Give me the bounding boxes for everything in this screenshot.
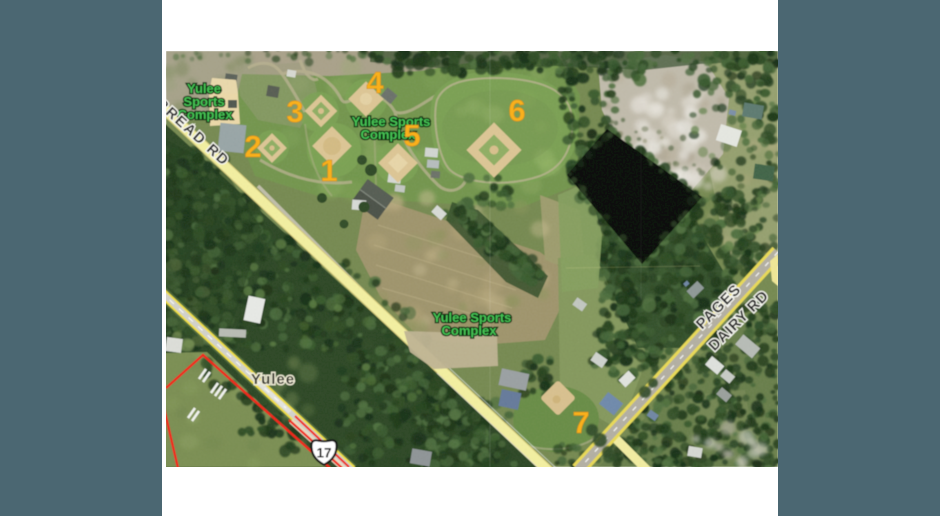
svg-text:4: 4 (366, 65, 384, 100)
svg-text:3: 3 (286, 94, 303, 129)
svg-text:Yulee: Yulee (251, 371, 295, 388)
svg-text:1: 1 (320, 153, 337, 188)
svg-text:Complex: Complex (442, 323, 498, 338)
svg-text:2: 2 (244, 129, 261, 164)
svg-text:6: 6 (508, 93, 525, 128)
svg-text:5: 5 (403, 118, 420, 153)
svg-text:7: 7 (572, 405, 589, 440)
svg-text:17: 17 (316, 446, 331, 461)
